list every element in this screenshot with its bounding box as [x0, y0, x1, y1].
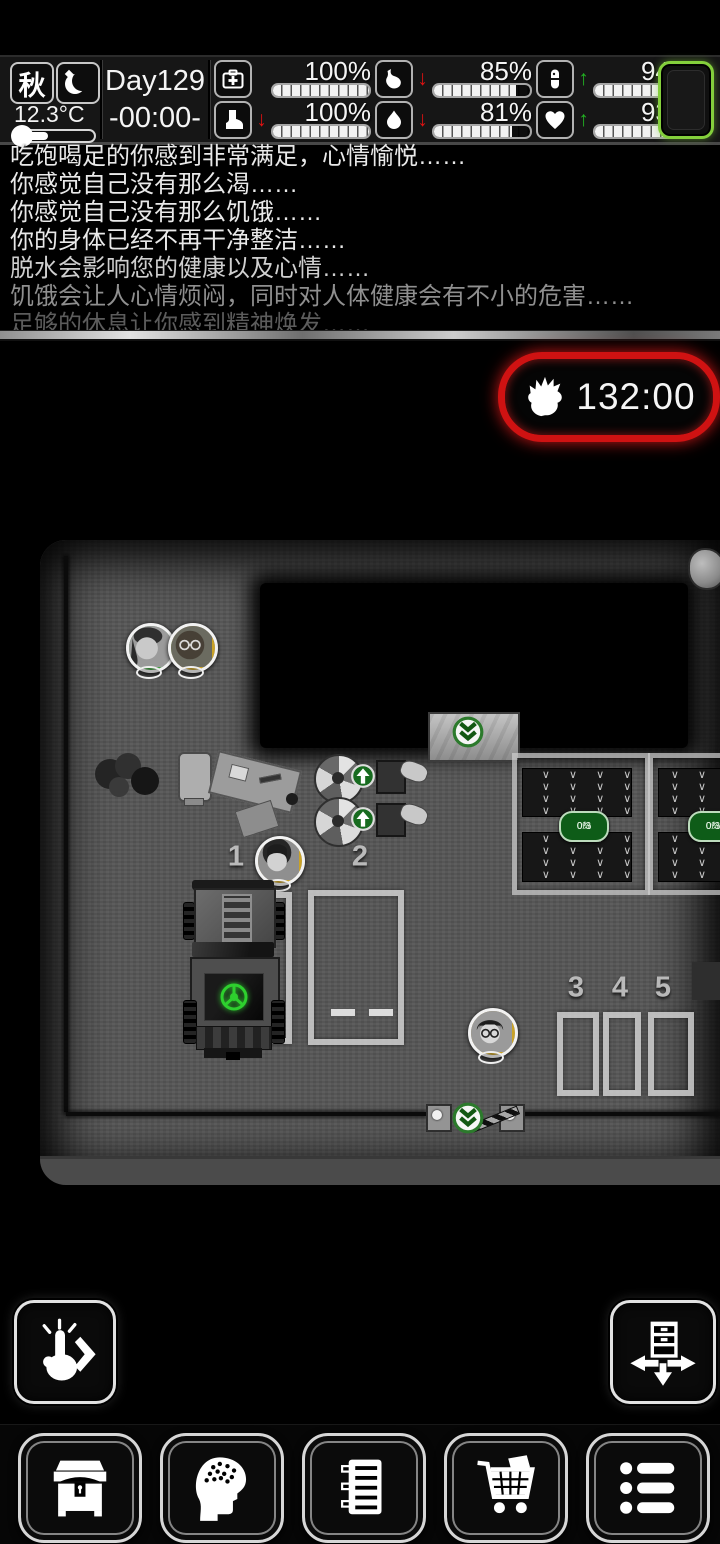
gate-exit-marker[interactable]: [451, 1101, 485, 1135]
divider: [208, 60, 210, 139]
day-time-panel: Day129 -00:00-: [104, 57, 206, 142]
log-line: 你感觉自己没有那么渴……: [0, 171, 720, 199]
game-screen: 秋 12.3°C Day129 -00:00- 100%: [0, 0, 720, 1544]
shopping-cart-icon: [471, 1453, 541, 1523]
pill-icon: [536, 60, 574, 98]
stat-value: 100%: [305, 60, 372, 83]
device-battery-icon: [658, 61, 714, 139]
truck-window: [204, 973, 264, 1021]
farm-plot-1[interactable]: 0/3 0%: [512, 753, 650, 895]
event-log: 吃饱喝足的你感到非常满足，心情愉悦…… 你感觉自己没有那么渴…… 你感觉自己没有…: [0, 143, 720, 330]
stat-medkit: 100%: [212, 59, 373, 100]
road-strip: [40, 1156, 720, 1185]
stat-bar: [271, 124, 371, 139]
stat-water: ↓ 81%: [373, 100, 534, 141]
crop-progress-badge: 0/3 0%: [688, 811, 720, 842]
crop-bed: [658, 768, 720, 817]
parking-label-5: 5: [655, 972, 671, 1005]
stat-value: 81%: [480, 101, 532, 124]
parking-spot-5: [648, 1012, 694, 1096]
interact-button[interactable]: [14, 1300, 116, 1404]
trend-down-icon: ↓: [415, 111, 430, 129]
crop-percent: 0%: [706, 821, 720, 832]
tap-hand-chevron-icon: [30, 1317, 100, 1387]
fence-left: [64, 556, 68, 1112]
parking-spot-2: [308, 890, 404, 1045]
stat-value: 85%: [480, 60, 532, 83]
stats-grid: 100% ↓ 100% ↓: [212, 59, 650, 140]
log-divider: [0, 330, 720, 341]
map-yard[interactable]: 0/3 0% 0/3 0% 1 2 3 4 5: [40, 540, 720, 1185]
trend-up-icon: ↑: [576, 70, 591, 88]
floor-mat: [235, 800, 280, 838]
log-line: 你感觉自己没有那么饥饿……: [0, 199, 720, 227]
trend-down-icon: ↓: [254, 111, 269, 129]
day-label: Day129: [104, 65, 206, 98]
avatar-base: [178, 666, 204, 679]
brain-head-icon: [187, 1453, 257, 1523]
debris-pile[interactable]: [95, 753, 167, 799]
rock: [688, 548, 720, 590]
move-furniture-button[interactable]: [610, 1300, 716, 1404]
bottom-toolbar: [0, 1424, 720, 1544]
status-bar: 秋 12.3°C Day129 -00:00- 100%: [0, 55, 720, 145]
armored-truck[interactable]: [186, 880, 280, 1058]
season-label: 秋: [19, 64, 46, 103]
parking-label-1: 1: [228, 841, 244, 874]
zombie-hand-icon: [522, 374, 568, 420]
stat-stomach: ↓ 85%: [373, 59, 534, 100]
water-drop-icon: [375, 101, 413, 139]
move-drawer-icon: [627, 1316, 699, 1388]
stat-bar: [432, 124, 532, 139]
parking-block: [330, 1008, 356, 1017]
drive-steering-icon[interactable]: [218, 981, 250, 1013]
season-badge: 秋: [10, 62, 54, 104]
chair[interactable]: [178, 752, 212, 802]
menu-button[interactable]: [586, 1433, 710, 1543]
gate-post-left: [426, 1104, 452, 1132]
small-object: [286, 793, 298, 805]
log-line: 足够的休息让你感到精神焕发……: [0, 311, 720, 330]
device-screen: [667, 70, 705, 130]
parking-label-4: 4: [612, 972, 628, 1005]
divider: [100, 60, 102, 139]
mind-skills-button[interactable]: [160, 1433, 284, 1543]
log-line: 你的身体已经不再干净整洁……: [0, 227, 720, 255]
chest-icon: [45, 1453, 115, 1523]
parking-spot-3: [557, 1012, 599, 1096]
avatar-base: [136, 666, 162, 679]
stat-boot: ↓ 100%: [212, 100, 373, 141]
time-label: -00:00-: [104, 102, 206, 135]
crescent-moon-icon: [72, 71, 92, 91]
fence-bottom-right: [521, 1112, 720, 1116]
notebook-icon: [329, 1453, 399, 1523]
avatar-base: [478, 1051, 504, 1064]
trend-up-icon: ↑: [576, 111, 591, 129]
enter-building-marker[interactable]: [451, 715, 485, 749]
trend-down-icon: ↓: [415, 70, 430, 88]
heart-icon: [536, 101, 574, 139]
crop-progress-badge: 0/3 0%: [559, 811, 609, 842]
parking-label-2: 2: [352, 841, 368, 874]
horde-timer: 132:00: [498, 352, 720, 442]
stomach-icon: [375, 60, 413, 98]
log-line: 饥饿会让人心情烦闷，同时对人体健康会有不小的危害……: [0, 283, 720, 311]
bullet-list-icon: [613, 1453, 683, 1523]
thermometer-icon: [14, 129, 96, 143]
log-line: 脱水会影响您的健康以及心情……: [0, 255, 720, 283]
parking-label-3: 3: [568, 972, 584, 1005]
moon-phase-badge: [56, 62, 100, 104]
upgrade-badge-icon[interactable]: [350, 763, 376, 789]
journal-button[interactable]: [302, 1433, 426, 1543]
storage-button[interactable]: [18, 1433, 142, 1543]
crop-bed: [522, 768, 632, 817]
farm-plot-2[interactable]: 0/3 0%: [648, 753, 720, 895]
crop-percent: 0%: [577, 821, 591, 832]
temperature-label: 12.3°C: [14, 101, 85, 128]
boot-icon: [214, 101, 252, 139]
fence-bottom-left: [66, 1112, 426, 1116]
upgrade-badge-icon[interactable]: [350, 806, 376, 832]
timer-value: 132:00: [576, 376, 695, 418]
shop-button[interactable]: [444, 1433, 568, 1543]
dark-patch: [692, 962, 720, 1000]
stat-bar: [432, 83, 532, 98]
parking-spot-4: [603, 1012, 641, 1096]
parking-block: [368, 1008, 394, 1017]
medkit-icon: [214, 60, 252, 98]
log-line: 吃饱喝足的你感到非常满足，心情愉悦……: [0, 143, 720, 171]
stat-bar: [271, 83, 371, 98]
stat-value: 100%: [305, 101, 372, 124]
